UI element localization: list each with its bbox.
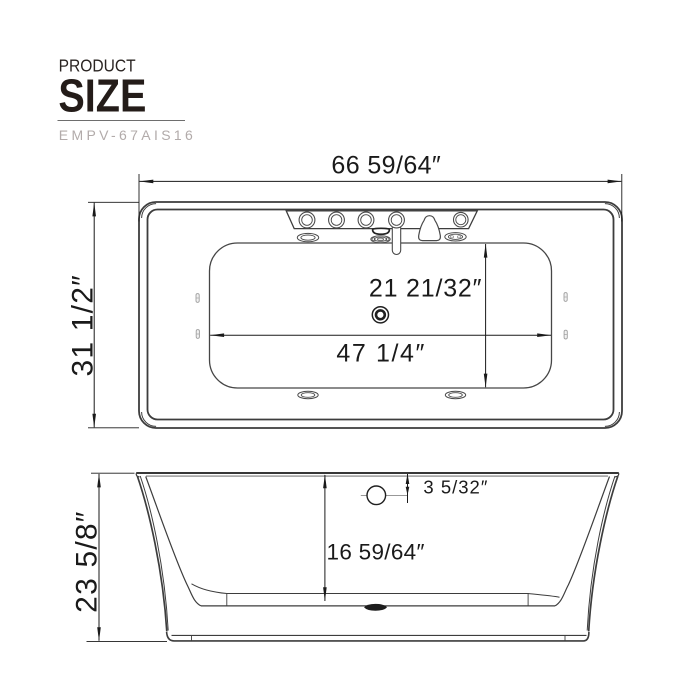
svg-text:SIZE: SIZE	[58, 69, 146, 121]
svg-text:21 21/32″: 21 21/32″	[369, 274, 482, 302]
svg-text:47 1/4″: 47 1/4″	[336, 340, 426, 368]
svg-text:16 59/64″: 16 59/64″	[327, 540, 425, 565]
svg-text:66 59/64″: 66 59/64″	[331, 152, 441, 180]
svg-text:23 5/8″: 23 5/8″	[71, 510, 104, 612]
svg-text:EMPV-67AIS16: EMPV-67AIS16	[59, 127, 193, 143]
svg-text:3 5/32″: 3 5/32″	[423, 477, 488, 498]
svg-text:31 1/2″: 31 1/2″	[67, 274, 100, 376]
